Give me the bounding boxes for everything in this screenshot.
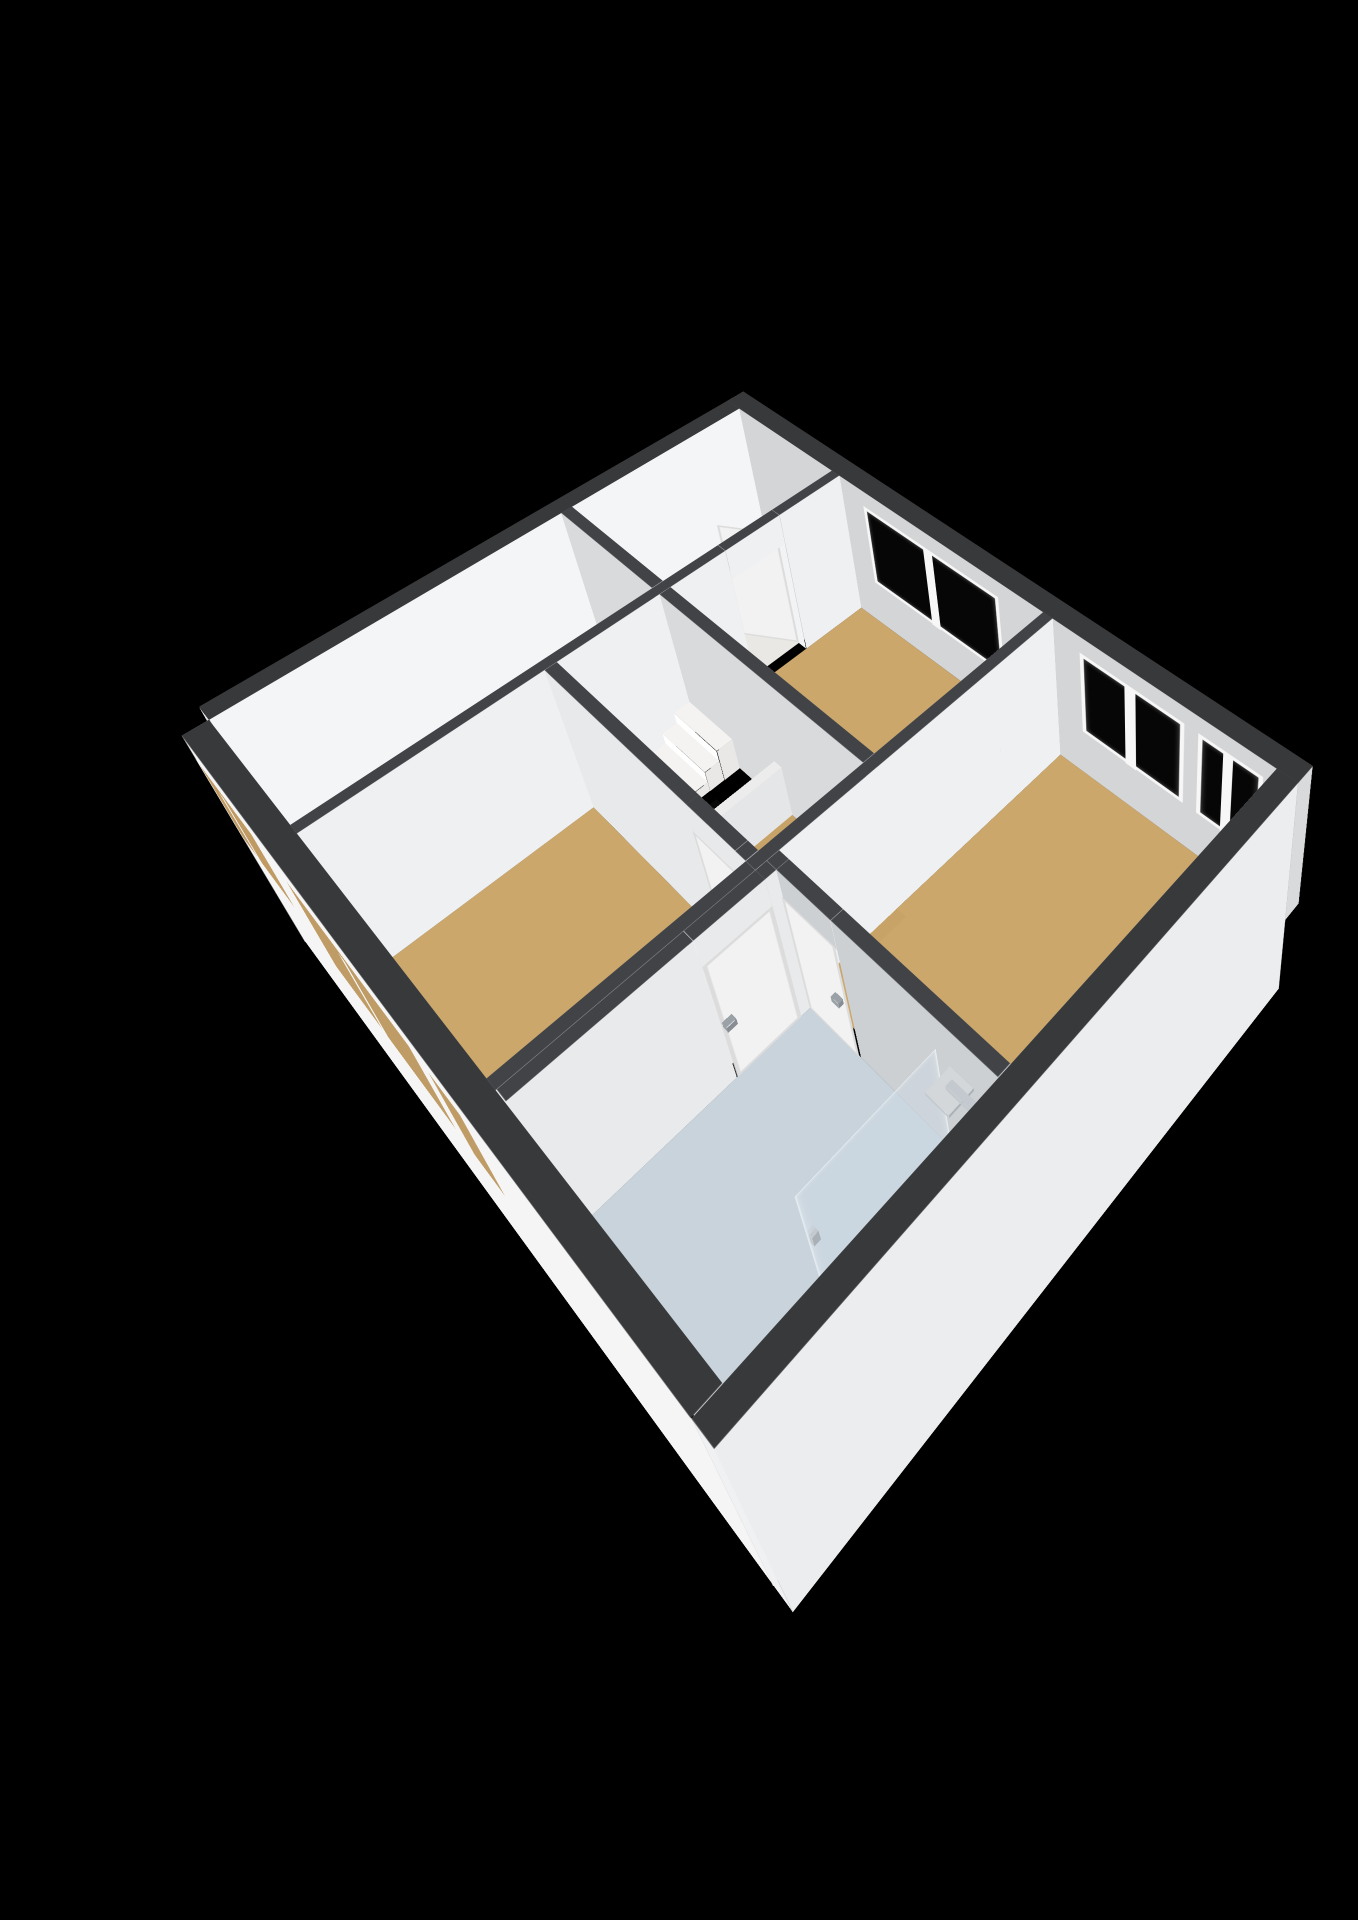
window-bedroom-b-1-mullion-1	[1124, 684, 1136, 771]
floorplan-viewport	[0, 0, 1358, 1920]
